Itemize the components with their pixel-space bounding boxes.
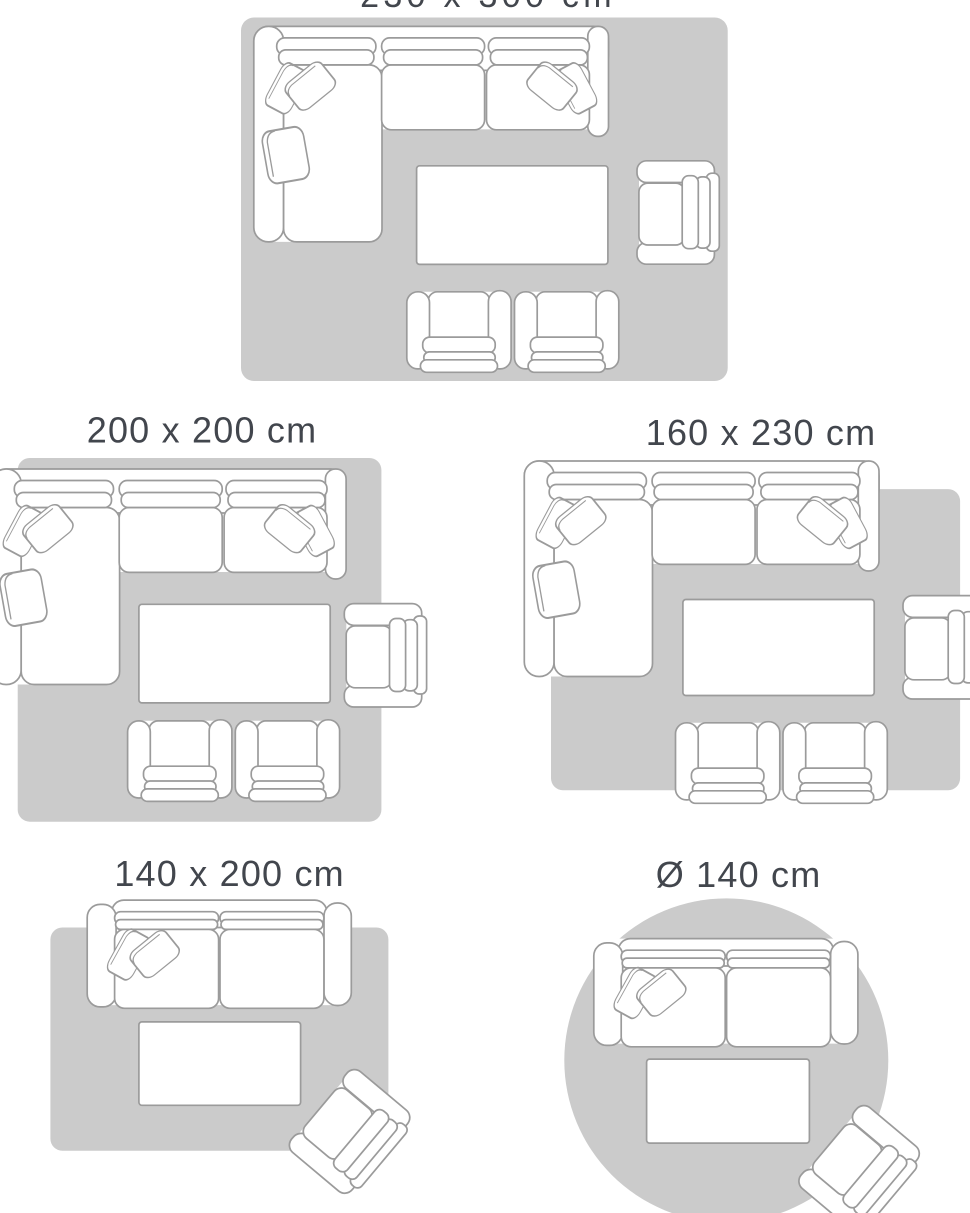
svg-text:Ø 140 cm: Ø 140 cm	[656, 854, 822, 895]
svg-text:160 x 230 cm: 160 x 230 cm	[646, 412, 877, 453]
svg-text:140 x 200 cm: 140 x 200 cm	[114, 853, 345, 894]
svg-text:230 x 300 cm: 230 x 300 cm	[360, 0, 616, 15]
svg-text:200 x 200 cm: 200 x 200 cm	[87, 410, 318, 451]
